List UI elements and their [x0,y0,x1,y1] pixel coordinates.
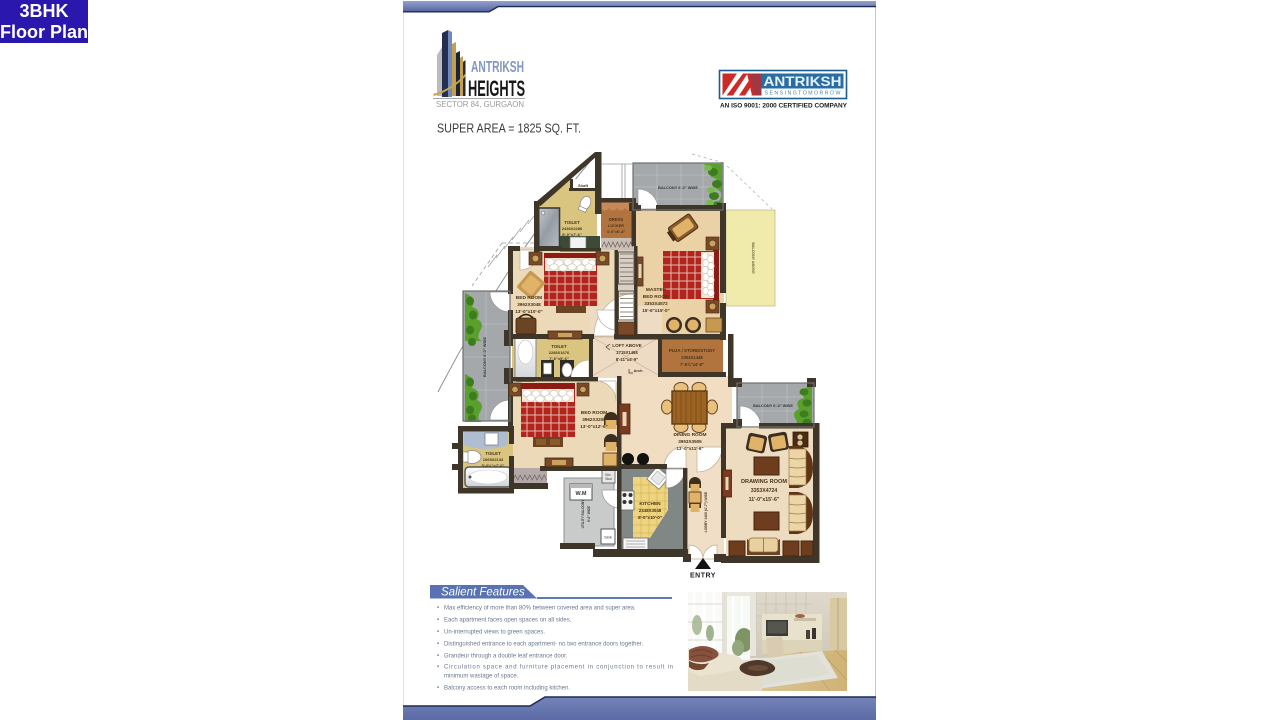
svg-text:KITCHEN: KITCHEN [639,501,661,507]
svg-text:ANTRIKSH: ANTRIKSH [764,74,842,89]
svg-text:3953X3505: 3953X3505 [678,439,702,444]
svg-text:8'-11"x4'-9": 8'-11"x4'-9" [616,357,639,362]
svg-text:PUJA / STORE/STUDY: PUJA / STORE/STUDY [669,348,715,353]
svg-text:DRAWING ROOM: DRAWING ROOM [741,479,787,485]
svg-text:5'-6½"x7'-0": 5'-6½"x7'-0" [482,463,505,468]
svg-text:Arch: Arch [633,368,643,373]
svg-text:Floor Plan: Floor Plan [0,22,88,42]
svg-text:Each apartment faces open spac: Each apartment faces open spaces on all … [444,618,572,624]
svg-text:Distinguished entrance to each: Distinguished entrance to each apartment… [444,642,643,648]
svg-text:Stud: Stud [605,477,612,481]
svg-text:AN ISO 9001: 2000 CERTIFIED CO: AN ISO 9001: 2000 CERTIFIED COMPANY [720,103,848,110]
svg-text:W.M: W.M [576,491,587,497]
svg-text:LOCKER: LOCKER [608,224,624,228]
svg-text:8'-0"x10'-0": 8'-0"x10'-0" [638,515,662,520]
svg-text:Grandeur through a double leaf: Grandeur through a double leaf entrance … [444,654,568,660]
svg-text:4'-0"x6'-8": 4'-0"x6'-8" [607,230,626,234]
svg-text:ANTRIKSH: ANTRIKSH [471,59,524,76]
svg-text:•: • [437,686,439,692]
svg-text:•: • [437,618,439,624]
svg-text:2286X1676: 2286X1676 [549,350,570,355]
svg-text:8'-0"x7'-6": 8'-0"x7'-6" [562,232,582,237]
svg-text:3962X3048: 3962X3048 [517,302,541,307]
svg-text:6'-0" WIDE: 6'-0" WIDE [587,506,591,522]
svg-text:MASTER: MASTER [646,287,667,293]
svg-text:•: • [437,642,439,648]
svg-text:TOILET: TOILET [551,344,567,349]
svg-text:DINING ROOM: DINING ROOM [673,432,706,438]
svg-text:2436X2286: 2436X2286 [562,226,583,231]
svg-text:TOILET: TOILET [564,220,580,225]
svg-text:•: • [437,654,439,660]
svg-text:UTILITY BALCONY: UTILITY BALCONY [581,499,585,529]
svg-text:2348X3048: 2348X3048 [639,508,662,513]
svg-text:Un-interrupted views to green: Un-interrupted views to green spaces. [444,630,545,636]
svg-text:LOFT ABOVE: LOFT ABOVE [612,343,641,348]
svg-text:TOILET: TOILET [485,451,501,456]
svg-text:BALCONY ABOVE: BALCONY ABOVE [751,242,755,274]
svg-text:•: • [437,665,439,671]
svg-text:HEIGHTS: HEIGHTS [468,76,525,101]
svg-text:BED ROOM: BED ROOM [643,294,669,300]
svg-text:2715X1468: 2715X1468 [616,350,638,355]
svg-text:3353X4724: 3353X4724 [751,488,778,494]
svg-text:Circulation space and furnitur: Circulation space and furniture placemen… [444,665,673,671]
svg-text:15'-6"x15'-0": 15'-6"x15'-0" [642,308,669,313]
svg-text:1665X2133: 1665X2133 [483,457,504,462]
svg-text:ENTRY: ENTRY [690,573,716,580]
svg-text:13'-0"x12'-6": 13'-0"x12'-6" [580,424,607,429]
svg-text:BED ROOM: BED ROOM [581,410,607,416]
svg-text:minimum wastage of space.: minimum wastage of space. [444,674,519,680]
svg-text:BALCONY 6'-0" WIDE: BALCONY 6'-0" WIDE [658,185,698,190]
svg-text:13'-0"x10'-0": 13'-0"x10'-0" [515,309,542,314]
svg-text:3353X4572: 3353X4572 [644,301,668,306]
svg-text:LOBBY 1400 (4'-7") WIDE: LOBBY 1400 (4'-7") WIDE [704,491,708,532]
svg-text:SUPER AREA = 1825 SQ. FT.: SUPER AREA = 1825 SQ. FT. [437,122,581,136]
svg-text:SECTOR 84, GURGAON: SECTOR 84, GURGAON [436,99,524,109]
svg-text:Max efficiency of more than 80: Max efficiency of more than 80% between … [444,606,636,612]
svg-text:BALCONY 6'-0" WIDE: BALCONY 6'-0" WIDE [753,403,793,408]
svg-text:3BHK: 3BHK [19,1,68,21]
svg-text:13'-0"x11'-6": 13'-0"x11'-6" [676,446,703,451]
svg-text:•: • [437,630,439,636]
svg-text:BALCONY 6'-0" WIDE: BALCONY 6'-0" WIDE [482,337,487,377]
svg-text:•: • [437,606,439,612]
svg-text:7'-6¾"x4'-8": 7'-6¾"x4'-8" [680,362,704,367]
svg-text:S E N S I N G T O M O R R O: S E N S I N G T O M O R R O W [765,91,842,97]
svg-text:Sink: Sink [604,535,612,540]
svg-text:3962X3200: 3962X3200 [582,417,606,422]
svg-text:7'-6"x5'-6": 7'-6"x5'-6" [549,356,569,361]
svg-text:2353X1448: 2353X1448 [681,355,703,360]
svg-text:Shaft: Shaft [578,183,589,188]
svg-text:11'-0"x15'-6": 11'-0"x15'-6" [749,497,780,503]
svg-text:Balcony access to each room in: Balcony access to each room including ki… [444,686,570,692]
svg-text:DRESS: DRESS [609,217,624,222]
svg-text:BED ROOM: BED ROOM [516,295,542,301]
svg-text:Salient Features: Salient Features [441,587,525,599]
